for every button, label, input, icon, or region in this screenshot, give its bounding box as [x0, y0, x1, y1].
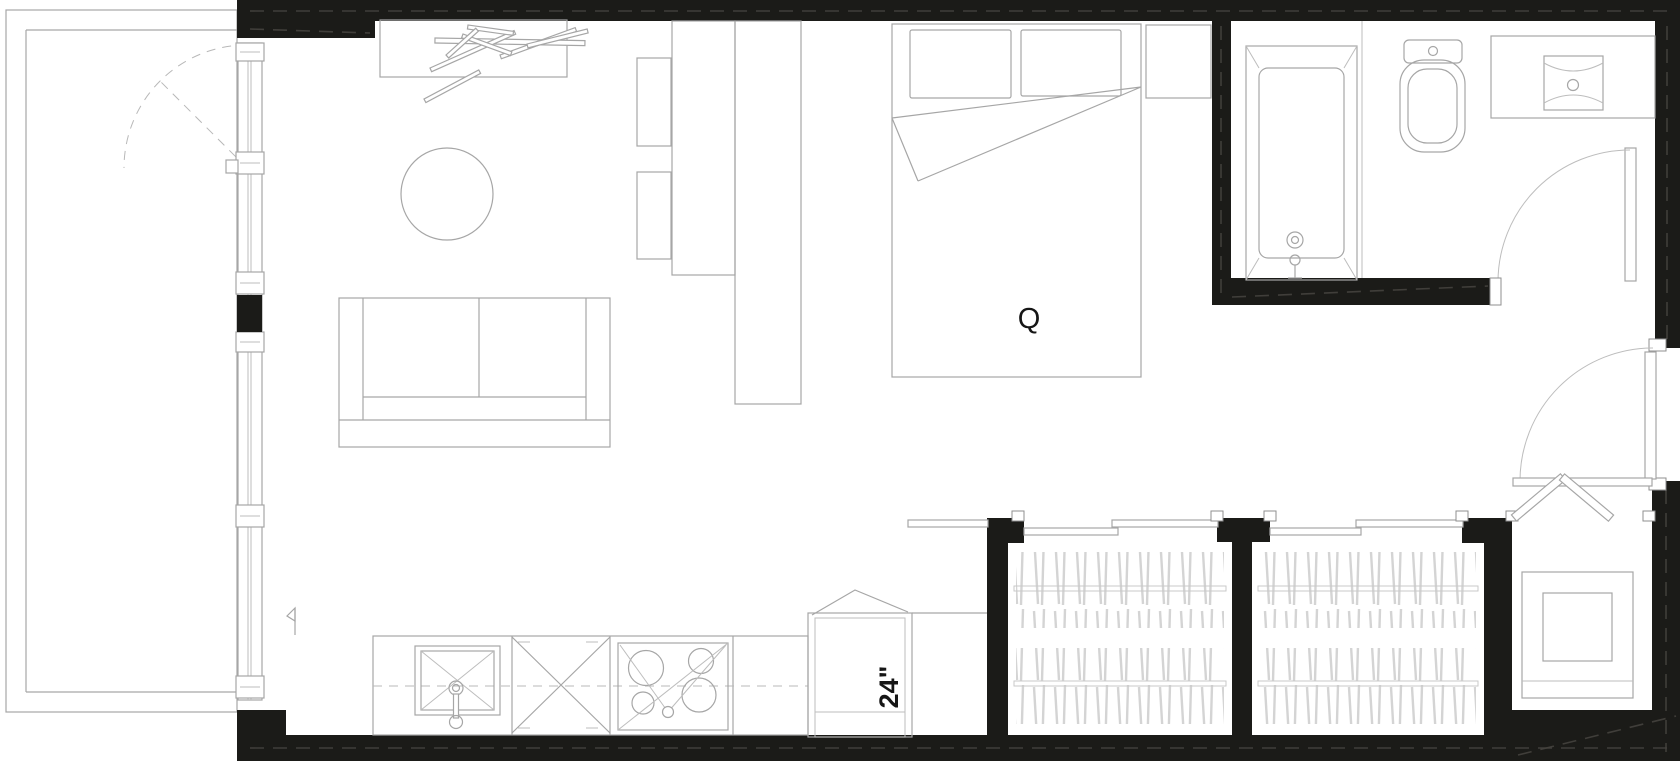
jamb-notch — [1012, 511, 1024, 521]
wall-window-mid-block — [237, 295, 262, 332]
closet2-hanging-clothes-top — [1260, 552, 1476, 628]
blanket-fold-lines — [892, 87, 1141, 181]
pillow-right — [1021, 30, 1121, 96]
tall-counter-2 — [735, 21, 801, 404]
cooktop-knob — [663, 707, 674, 718]
sofa — [339, 298, 610, 447]
vanity-sink-rim — [1544, 56, 1603, 110]
washer-dryer — [1522, 572, 1633, 698]
floor-plan: Q — [0, 0, 1680, 761]
vanity-faucet — [1568, 80, 1579, 91]
burner-large-back — [682, 678, 716, 712]
laundry-closet — [1511, 474, 1652, 698]
closet1-sliding-door-back — [1112, 520, 1218, 527]
washer-outline — [1522, 572, 1633, 698]
balcony-outline — [6, 10, 237, 712]
wall-closet-mid-post — [1217, 518, 1270, 542]
entry-door-swing-arc — [1520, 348, 1653, 481]
wall-bottom — [237, 735, 1680, 761]
tub-drain-inner — [1292, 237, 1299, 244]
closet2-sliding-door-front — [1270, 528, 1361, 535]
desk-scattered-sticks — [424, 25, 588, 103]
wall-right-upper — [1655, 21, 1680, 348]
bathroom-door-leaf — [1625, 148, 1636, 281]
closet2-sliding-door-back — [1356, 520, 1463, 527]
wall-top — [237, 0, 1680, 21]
wall-closet-mid-stem — [1232, 542, 1252, 737]
burner-small-back — [689, 649, 714, 674]
seat-2 — [637, 172, 671, 259]
wall-closet1-left-stem — [987, 543, 1008, 737]
washer-drum — [1543, 593, 1612, 661]
window-frame — [238, 43, 262, 700]
bathroom-door-swing-arc — [1498, 150, 1630, 282]
seat-1 — [637, 58, 671, 146]
bed-outline — [892, 24, 1141, 377]
wall-closet2-right-post — [1462, 518, 1512, 543]
pillow-left — [910, 30, 1011, 98]
tub-basin — [1259, 68, 1344, 258]
balcony-door-leaf-dashed — [160, 81, 247, 168]
bathroom-vanity — [1491, 36, 1655, 118]
toilet-flush-button — [1429, 47, 1438, 56]
round-table — [401, 148, 493, 240]
entry — [1520, 339, 1666, 490]
tub-drain-outer — [1287, 232, 1303, 248]
wall-laundry-left-stem — [1484, 543, 1512, 737]
bifold-door-track — [1513, 478, 1652, 486]
living-area: Q — [287, 20, 1211, 635]
mullion-tab — [226, 160, 238, 173]
closet-1 — [1014, 520, 1226, 724]
toilet — [1400, 40, 1465, 152]
toilet-bowl — [1400, 60, 1465, 152]
fridge-door-peak — [812, 590, 908, 615]
closet1-sliding-door-front — [1024, 528, 1118, 535]
vanity-counter — [1491, 36, 1655, 118]
entry-door-jamb-top — [1649, 339, 1666, 351]
stick — [424, 70, 481, 103]
jamb-notch — [1643, 511, 1655, 521]
bed-size-label: Q — [1018, 303, 1041, 335]
kitchen-sink — [415, 646, 500, 729]
kitchen: 24" — [373, 520, 988, 737]
entry-door-leaf — [1645, 352, 1656, 479]
balcony — [6, 10, 247, 712]
tub-faucet — [1290, 255, 1300, 265]
flag-pennant — [287, 608, 295, 621]
fridge-width-label: 24" — [874, 666, 904, 709]
jamb-notch — [1456, 511, 1468, 521]
dishwasher-x-mark — [512, 637, 610, 733]
section-flag-marker — [287, 608, 295, 635]
dishwasher — [512, 637, 610, 733]
closet-2 — [1258, 520, 1478, 724]
walls — [237, 0, 1680, 761]
closet-return-header — [908, 520, 988, 527]
jamb-notch — [1211, 511, 1223, 521]
closet1-hanging-clothes-top — [1016, 552, 1224, 628]
queen-bed: Q — [892, 24, 1141, 377]
bathroom-door — [1498, 148, 1636, 282]
sofa-cushion-lines — [339, 298, 610, 420]
floor-plan-drawing: Q — [0, 0, 1680, 761]
wall-closet1-left-post — [987, 518, 1024, 543]
faucet-stem — [454, 694, 459, 718]
bathroom — [1246, 21, 1655, 305]
sofa-outline — [339, 298, 610, 447]
faucet-base — [449, 681, 463, 695]
toilet-seat — [1408, 69, 1457, 143]
balcony-parapet-line — [26, 30, 237, 692]
tub-faucet-stem — [1288, 265, 1302, 278]
nightstand — [1146, 25, 1211, 98]
burner-large-front — [629, 651, 664, 686]
jamb-notch — [1264, 511, 1276, 521]
tall-counter-1 — [672, 21, 735, 275]
refrigerator: 24" — [808, 590, 912, 737]
closet-post-jamb-notches — [1012, 511, 1655, 521]
vanity-sink-curves — [1544, 63, 1603, 103]
balcony-window-wall — [226, 43, 264, 700]
bathroom-door-jamb — [1490, 278, 1501, 305]
bathtub — [1246, 46, 1357, 280]
